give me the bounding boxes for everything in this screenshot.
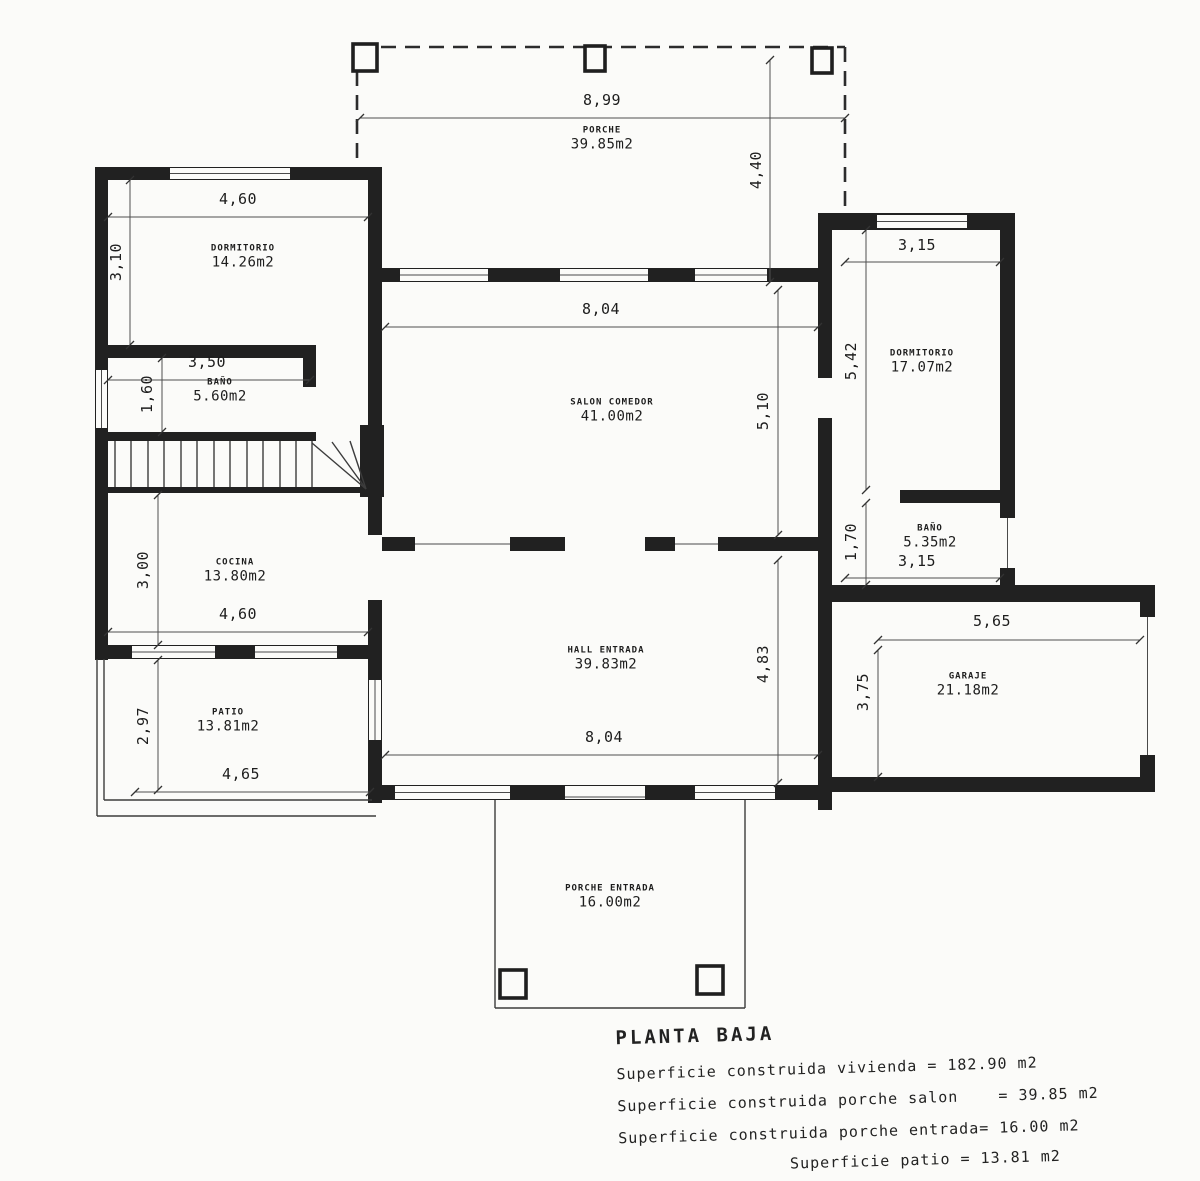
room-label-bano2: BAÑO 5.35m2 [903, 524, 957, 553]
dim-bano1-depth: 1,60 [138, 375, 156, 413]
dim-cocina-width: 4,60 [219, 605, 257, 623]
summary-line-vivienda: Superficie construida vivienda = 182.90 … [616, 1054, 1038, 1084]
stairs [115, 441, 366, 489]
summary-line-patio: Superficie patio = 13.81 m2 [790, 1147, 1061, 1173]
dim-patio-width: 4,65 [222, 765, 260, 783]
room-label-porche-entrada: PORCHE ENTRADA 16.00m2 [565, 884, 655, 913]
dim-dorm1-width: 4,60 [219, 190, 257, 208]
room-label-bano1: BAÑO 5.60m2 [193, 378, 247, 407]
plan-title: PLANTA BAJA [615, 1023, 774, 1049]
summary-line-porche-entrada: Superficie construida porche entrada= 16… [618, 1116, 1080, 1147]
dim-salon-width: 8,04 [582, 300, 620, 318]
room-label-garaje: GARAJE 21.18m2 [937, 672, 1000, 701]
dim-patio-depth: 2,97 [134, 707, 152, 745]
room-label-hall: HALL ENTRADA 39.83m2 [567, 646, 644, 675]
floor-plan-page: PORCHE 39.85m2 DORMITORIO 14.26m2 BAÑO 5… [0, 0, 1200, 1181]
dim-garaje-width: 5,65 [973, 612, 1011, 630]
summary-line-porche-salon: Superficie construida porche salon = 39.… [617, 1084, 1099, 1115]
room-label-cocina: COCINA 13.80m2 [204, 558, 267, 587]
porch-posts [353, 44, 832, 73]
dim-dorm2-depth: 5,42 [842, 342, 860, 380]
dim-cocina-depth: 3,00 [134, 551, 152, 589]
dim-dorm1-depth: 3,10 [107, 243, 125, 281]
dim-porche-depth: 4,40 [747, 151, 765, 189]
dim-salon-depth: 5,10 [754, 392, 772, 430]
room-label-patio: PATIO 13.81m2 [197, 708, 260, 737]
dim-bano2-depth: 1,70 [842, 523, 860, 561]
dim-porche-width: 8,99 [583, 91, 621, 109]
dim-hall-width: 8,04 [585, 728, 623, 746]
plan-summary: PLANTA BAJA Superficie construida vivien… [590, 1004, 1200, 1181]
dim-bano2-width: 3,15 [898, 552, 936, 570]
dim-garaje-depth: 3,75 [854, 673, 872, 711]
floorplan-svg [0, 0, 1200, 1181]
dim-bano1-width: 3,50 [188, 353, 226, 371]
room-label-porche: PORCHE 39.85m2 [571, 126, 634, 155]
room-label-dormitorio2: DORMITORIO 17.07m2 [890, 349, 954, 378]
dim-dorm2-width: 3,15 [898, 236, 936, 254]
dim-hall-depth: 4,83 [754, 645, 772, 683]
room-label-dormitorio1: DORMITORIO 14.26m2 [211, 244, 275, 273]
room-label-salon: SALON COMEDOR 41.00m2 [570, 398, 653, 427]
